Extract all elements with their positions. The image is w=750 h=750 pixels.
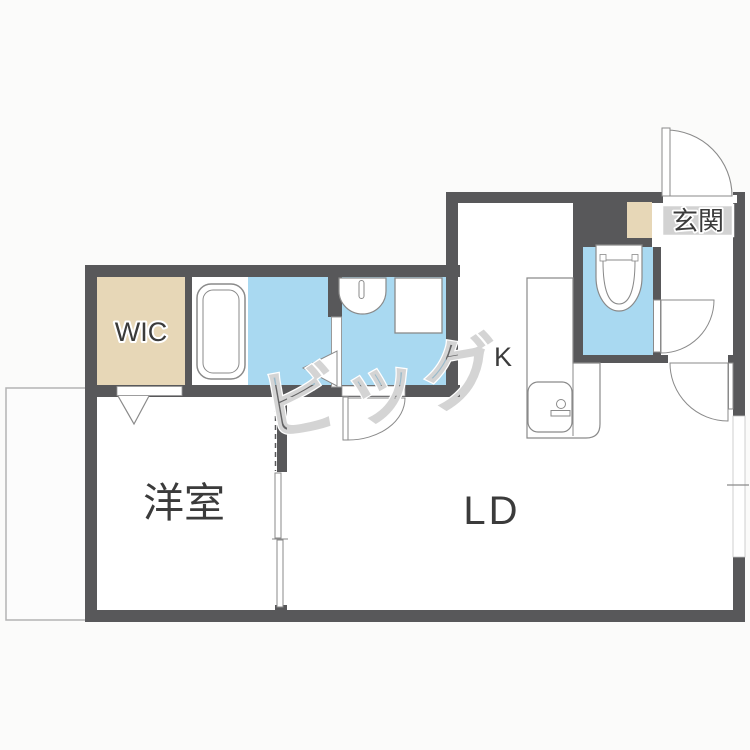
entrance-label: 玄関 — [672, 206, 724, 236]
floorplan-drawing: WIC 洋室 LD K 玄関 ビッグ — [0, 0, 750, 750]
hall-ld-door-leaf — [729, 363, 734, 409]
living-dining-label: LD — [463, 489, 520, 533]
kitchen-faucet — [557, 400, 566, 409]
wall-segment — [573, 355, 668, 363]
wall-segment — [733, 557, 745, 622]
wic-door-opening — [117, 387, 182, 396]
floorplan-canvas: WIC 洋室 LD K 玄関 ビッグ — [0, 0, 750, 750]
balcony — [6, 388, 86, 620]
sliding-panel-upper — [275, 473, 281, 538]
wall-segment — [85, 265, 97, 622]
washbasin-faucet — [359, 281, 364, 299]
sliding-panel-lower — [277, 540, 283, 607]
wic-label: WIC — [115, 317, 167, 347]
wall-segment — [573, 247, 583, 363]
wall-segment — [85, 265, 460, 277]
toilet-tab-left — [600, 255, 606, 262]
entrance-step-strip — [652, 203, 662, 247]
bathtub — [197, 284, 245, 379]
toilet-door-leaf — [654, 300, 661, 352]
wall-segment — [728, 355, 733, 363]
wall-segment — [733, 192, 745, 416]
wall-segment — [85, 610, 745, 622]
entrance-door-leaf — [662, 128, 670, 196]
kitchen-faucet-base — [551, 411, 570, 417]
toilet-tab-right — [632, 255, 638, 262]
washing-machine-space — [395, 278, 442, 333]
shoe-cabinet — [627, 202, 652, 238]
western-room-label: 洋室 — [143, 480, 225, 526]
wall-segment — [446, 192, 663, 203]
wall-segment — [185, 277, 192, 385]
kitchen-sink — [528, 382, 572, 432]
